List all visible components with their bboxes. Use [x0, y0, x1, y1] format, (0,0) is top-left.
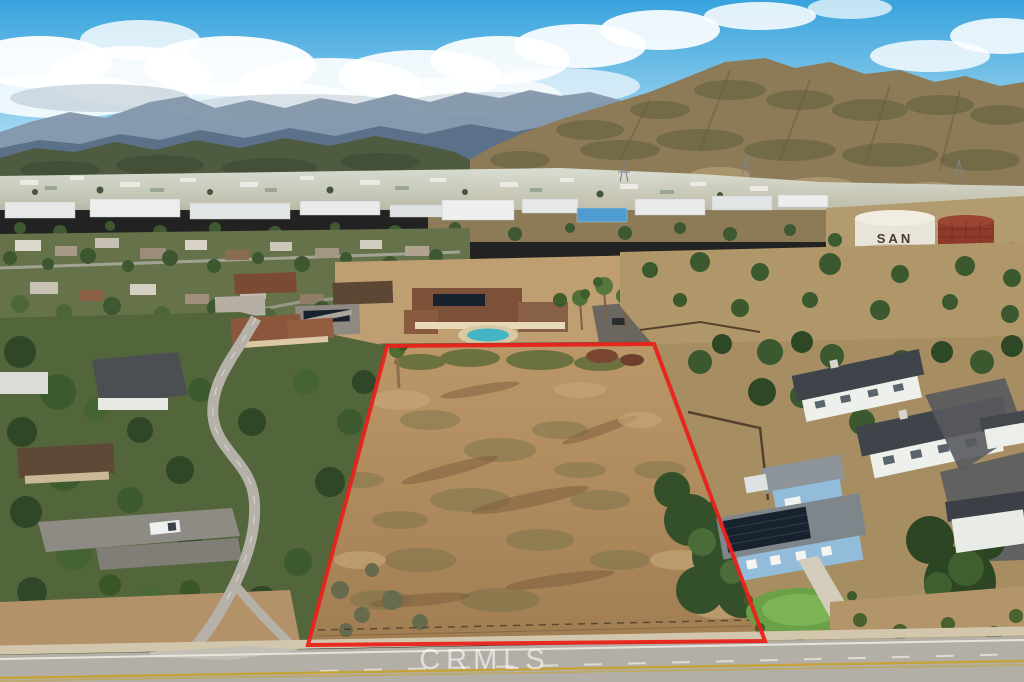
dark-roof-house [332, 281, 393, 305]
aerial-photo: SAN [0, 0, 1024, 682]
crmls-watermark: CRMLS [419, 644, 551, 676]
water-tank-label: SAN [877, 231, 913, 246]
right-dry-hill [620, 242, 1024, 346]
brown-roof-house [234, 272, 297, 294]
parked-car-dark [612, 318, 626, 325]
white-house-left [0, 372, 48, 394]
screenshot-root: SAN [0, 0, 1024, 682]
solar-array-mansion [433, 294, 485, 306]
blue-building [577, 208, 627, 222]
swimming-pool [467, 329, 509, 342]
brown-house-left [17, 443, 115, 484]
